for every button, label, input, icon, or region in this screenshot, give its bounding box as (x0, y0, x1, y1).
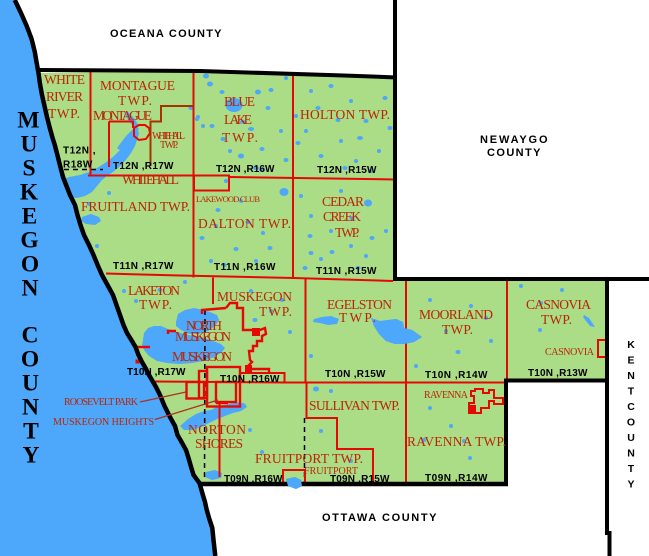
svg-text:MONTAGUE: MONTAGUE (100, 78, 175, 93)
svg-text:DALTON TWP.: DALTON TWP. (198, 216, 291, 231)
svg-text:U: U (627, 432, 635, 444)
svg-text:TWP.: TWP. (259, 304, 292, 319)
svg-text:T: T (628, 463, 635, 475)
svg-text:OTTAWA COUNTY: OTTAWA COUNTY (322, 512, 438, 524)
svg-text:T09N ,R16W: T09N ,R16W (224, 474, 283, 485)
svg-text:MUSKEGON HEIGHTS: MUSKEGON HEIGHTS (53, 417, 154, 428)
svg-text:RAVENNA TWP.: RAVENNA TWP. (407, 434, 506, 449)
svg-text:SULLIVAN TWP.: SULLIVAN TWP. (309, 398, 400, 413)
svg-text:T11N ,R15W: T11N ,R15W (316, 266, 377, 277)
svg-text:FRUITPORT: FRUITPORT (304, 466, 358, 477)
svg-text:T10N ,R15W: T10N ,R15W (325, 369, 386, 380)
svg-text:T10N ,R13W: T10N ,R13W (528, 368, 588, 379)
svg-text:U: U (22, 371, 39, 397)
svg-text:TWP.: TWP. (442, 322, 473, 337)
svg-text:O: O (21, 347, 39, 373)
svg-text:N: N (627, 448, 635, 460)
svg-text:O: O (627, 417, 635, 429)
svg-text:MUSKEGON: MUSKEGON (175, 329, 231, 344)
svg-text:RAVENNA: RAVENNA (424, 390, 469, 401)
svg-text:S: S (22, 156, 35, 182)
svg-text:TWP.: TWP. (118, 93, 152, 108)
svg-text:E: E (627, 355, 634, 367)
svg-text:TWP.: TWP. (48, 106, 80, 121)
svg-text:T12N ,R17W: T12N ,R17W (113, 161, 174, 172)
svg-text:MONTAGUE: MONTAGUE (93, 108, 152, 123)
svg-text:TWP.: TWP. (541, 312, 572, 327)
svg-text:TWP.: TWP. (335, 225, 359, 240)
svg-text:T12N ,R15W: T12N ,R15W (317, 165, 377, 176)
svg-text:K: K (627, 339, 635, 351)
svg-text:WHITEHALL: WHITEHALL (122, 172, 179, 187)
svg-text:MUSKEGON: MUSKEGON (217, 289, 292, 304)
svg-text:T12N ,R16W: T12N ,R16W (216, 164, 275, 175)
svg-text:Y: Y (23, 443, 40, 469)
svg-text:CASNOVIA: CASNOVIA (545, 347, 595, 358)
svg-text:MUSKEGON: MUSKEGON (172, 349, 232, 364)
svg-text:NEWAYGO: NEWAYGO (480, 134, 549, 146)
svg-text:SHORES: SHORES (195, 436, 243, 451)
svg-text:WHITE: WHITE (44, 72, 85, 87)
svg-text:MOORLAND: MOORLAND (419, 307, 493, 322)
svg-text:BLUE: BLUE (224, 94, 255, 109)
svg-text:T10N ,R16W: T10N ,R16W (220, 374, 280, 385)
svg-text:Y: Y (627, 479, 634, 491)
svg-text:R18W: R18W (63, 160, 93, 171)
svg-text:FRUITLAND TWP.: FRUITLAND TWP. (81, 199, 190, 214)
svg-text:N: N (627, 370, 635, 382)
svg-text:N: N (22, 395, 39, 421)
svg-text:C: C (627, 401, 635, 413)
svg-text:G: G (20, 228, 38, 254)
svg-text:T10N ,R17W: T10N ,R17W (127, 367, 186, 378)
svg-text:T10N ,R14W: T10N ,R14W (425, 370, 488, 381)
svg-text:COUNTY: COUNTY (487, 147, 542, 159)
svg-text:C: C (22, 323, 39, 349)
svg-text:K: K (20, 180, 39, 206)
svg-text:RIVER: RIVER (46, 89, 83, 104)
svg-text:LAKETON: LAKETON (128, 283, 180, 298)
svg-text:T11N ,R16W: T11N ,R16W (214, 262, 276, 273)
svg-text:CREEK: CREEK (323, 209, 361, 224)
svg-text:M: M (17, 108, 39, 134)
svg-text:OCEANA COUNTY: OCEANA COUNTY (110, 28, 223, 40)
svg-text:CASNOVIA: CASNOVIA (526, 297, 591, 312)
svg-text:U: U (21, 132, 38, 158)
svg-text:O: O (21, 252, 39, 278)
svg-text:LAKE: LAKE (224, 112, 252, 127)
svg-text:HOLTON TWP.: HOLTON TWP. (300, 107, 390, 122)
svg-text:CEDAR: CEDAR (322, 194, 364, 209)
svg-text:E: E (22, 204, 38, 230)
svg-text:ROOSEVELT PARK: ROOSEVELT PARK (64, 397, 139, 408)
svg-text:LAKEWOOD CLUB: LAKEWOOD CLUB (196, 194, 260, 204)
svg-text:FRUITPORT TWP.: FRUITPORT TWP. (255, 451, 363, 466)
svg-text:TWP.: TWP. (222, 130, 258, 145)
svg-text:T09N ,R14W: T09N ,R14W (425, 473, 488, 484)
svg-text:TWP.: TWP. (160, 140, 179, 151)
svg-text:T11N ,R17W: T11N ,R17W (113, 261, 174, 272)
svg-text:N: N (22, 276, 39, 302)
svg-text:T12N ,: T12N , (63, 146, 96, 157)
svg-text:NORTON: NORTON (188, 422, 246, 437)
svg-text:T: T (628, 386, 635, 398)
svg-text:T: T (23, 419, 39, 445)
svg-text:TWP.: TWP. (139, 297, 172, 312)
